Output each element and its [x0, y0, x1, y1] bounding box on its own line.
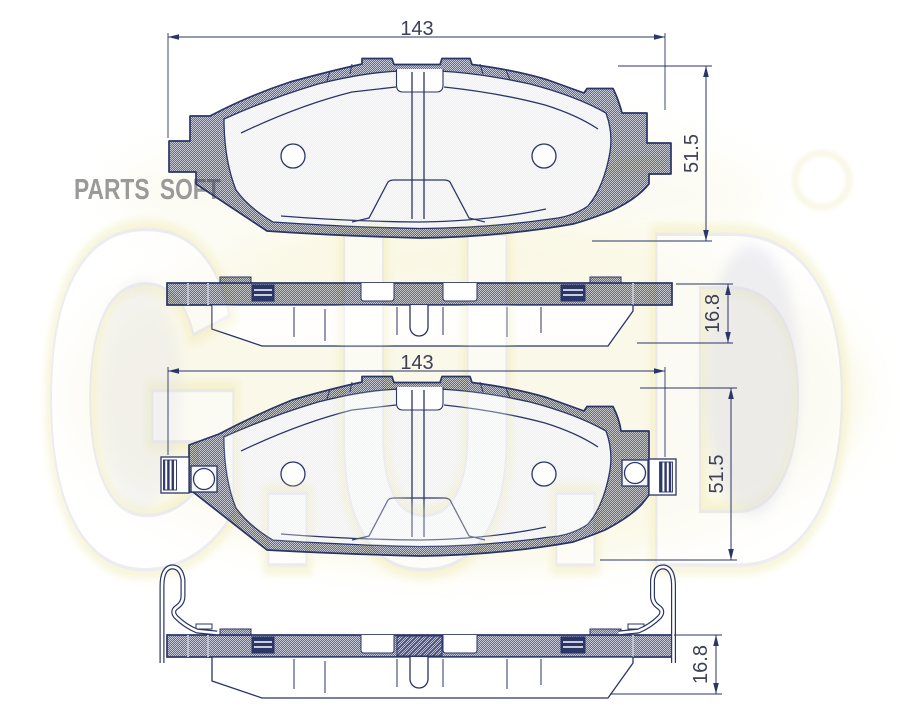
svg-text:16.8: 16.8 — [690, 645, 712, 684]
svg-text:51.5: 51.5 — [706, 455, 728, 494]
svg-text:143: 143 — [400, 352, 433, 374]
svg-text:16.8: 16.8 — [702, 294, 724, 333]
svg-text:51.5: 51.5 — [681, 134, 703, 173]
svg-text:143: 143 — [400, 18, 433, 40]
